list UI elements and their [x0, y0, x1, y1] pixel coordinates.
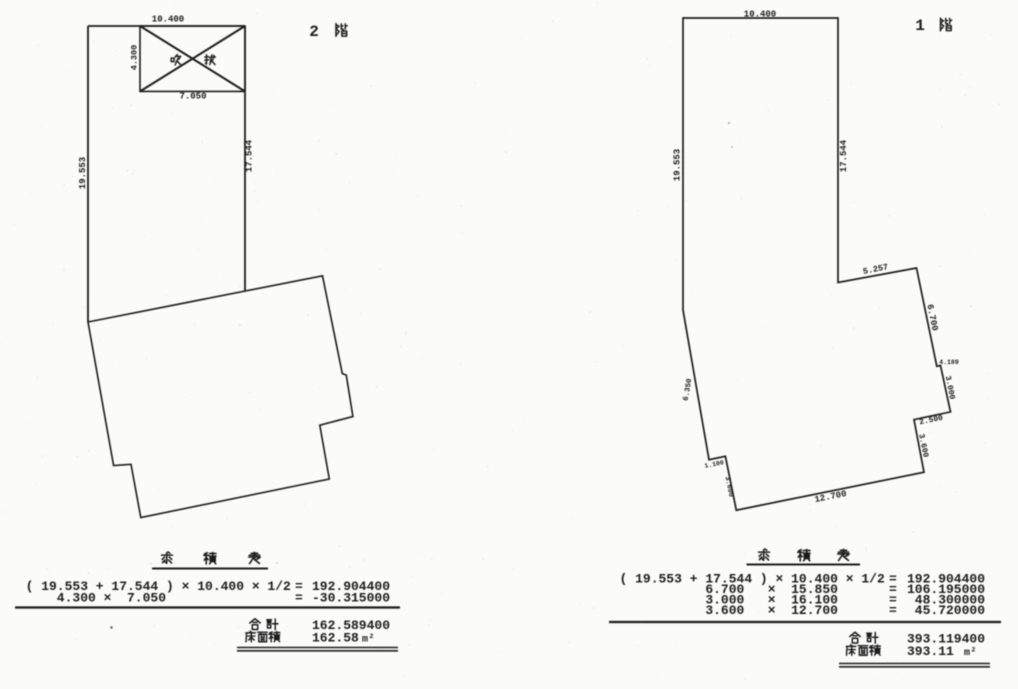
svg-text:2: 2: [972, 647, 976, 654]
svg-text:4.300: 4.300: [130, 45, 140, 71]
svg-text:45.720000: 45.720000: [915, 603, 985, 618]
svg-text:=: =: [295, 591, 303, 606]
svg-text:393.11: 393.11: [907, 644, 954, 659]
svg-text:7.050: 7.050: [179, 92, 206, 102]
svg-text:3.600 × 12.700: 3.600 × 12.700: [620, 603, 839, 618]
svg-text:4.300 × 7.050: 4.300 × 7.050: [26, 591, 167, 606]
svg-text:2: 2: [370, 633, 374, 640]
svg-text:17.544: 17.544: [245, 139, 255, 172]
svg-text:=: =: [889, 603, 897, 618]
svg-text:19.553: 19.553: [673, 149, 683, 181]
svg-text:4.189: 4.189: [939, 359, 959, 366]
svg-text:2: 2: [309, 23, 319, 41]
svg-text:m: m: [362, 635, 368, 646]
svg-text:10.400: 10.400: [744, 10, 776, 20]
svg-text:1: 1: [915, 17, 925, 35]
svg-text:19.553: 19.553: [78, 157, 88, 189]
svg-text:-30.315000: -30.315000: [312, 591, 390, 606]
svg-text:10.400: 10.400: [152, 15, 184, 25]
svg-text:17.544: 17.544: [839, 139, 849, 172]
svg-text:162.58: 162.58: [312, 631, 359, 646]
svg-text:m: m: [964, 648, 970, 659]
